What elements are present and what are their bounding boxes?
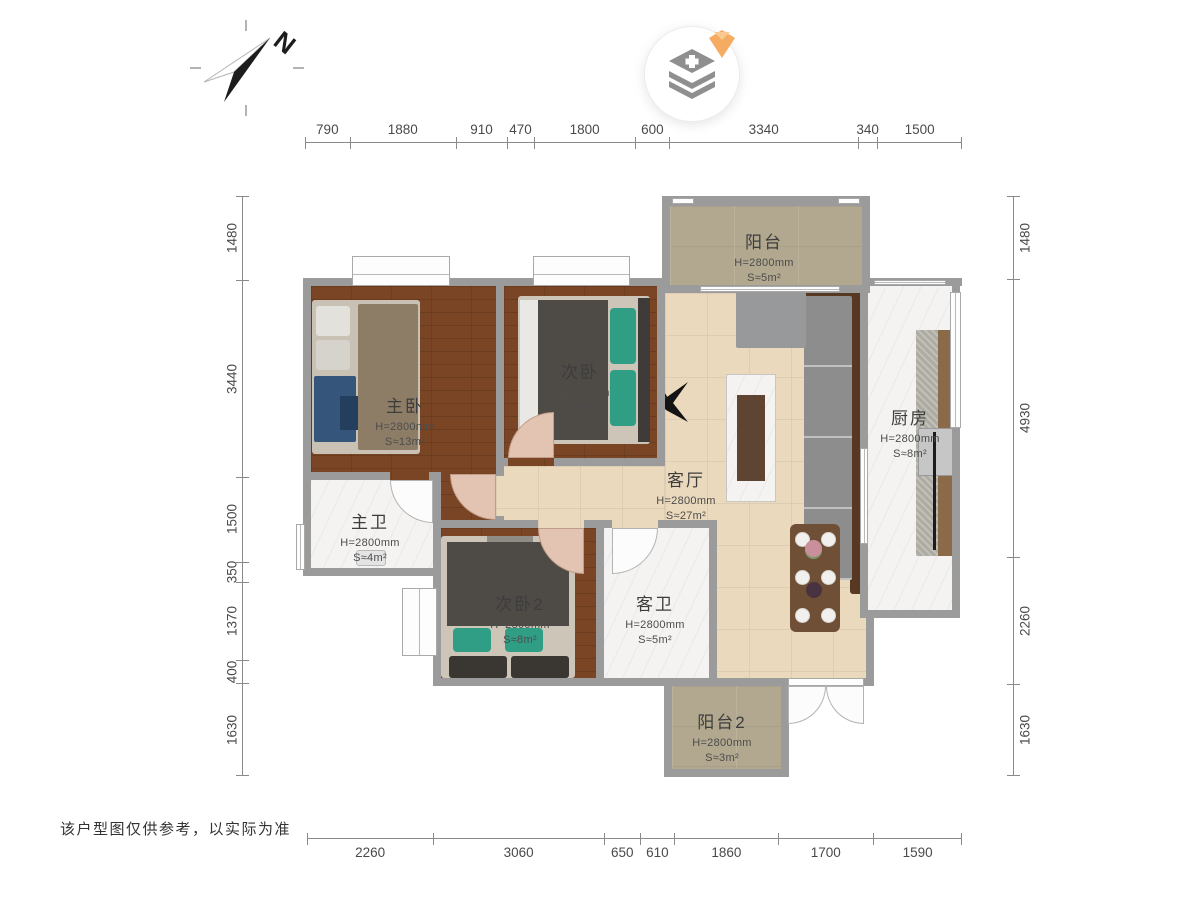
floor-plan-canvas: N 7901880910470180060033403401500 226030… <box>0 0 1200 900</box>
dimension-segment: 1590 <box>873 832 962 864</box>
dimension-line-top: 7901880910470180060033403401500 <box>305 120 962 150</box>
dimension-segment: 1800 <box>534 120 636 150</box>
room-label-bedroom-3: 次卧2 H=2800mm S≈8m² <box>490 590 550 649</box>
plate <box>821 570 836 585</box>
wall-segment <box>662 196 670 288</box>
dimension-value: 400 <box>225 660 240 683</box>
dimension-segment: 400 <box>222 660 252 683</box>
dimension-segment: 4930 <box>1004 279 1034 557</box>
dimension-value: 2260 <box>355 845 385 860</box>
dimension-line-bottom: 22603060650610186017001590 <box>307 832 962 864</box>
dimension-segment: 1880 <box>350 120 456 150</box>
plate <box>795 608 810 623</box>
dimension-value: 1630 <box>225 714 240 744</box>
room-label-bedroom-2: 次卧 H=2800mm S≈9m² <box>550 358 610 417</box>
pillow <box>316 340 350 370</box>
room-label-master-bedroom: 主卧 H=2800mm S≈13m² <box>375 392 435 451</box>
wall-segment <box>657 278 665 466</box>
dimension-value: 790 <box>316 122 339 137</box>
room-label-balcony-2: 阳台2 H=2800mm S≈3m² <box>692 708 752 767</box>
room-label-balcony: 阳台 H=2800mm S≈5m² <box>734 228 794 287</box>
premium-diamond-icon <box>706 28 738 60</box>
dimension-value: 910 <box>470 122 493 137</box>
dimension-segment: 1500 <box>222 477 252 563</box>
wall-segment <box>709 678 788 686</box>
wall-segment <box>860 610 960 618</box>
dimension-segment: 610 <box>640 832 674 864</box>
dimension-segment: 1630 <box>222 683 252 776</box>
wall-segment <box>862 196 870 288</box>
kitchen-side-window <box>950 292 961 428</box>
dimension-value: 610 <box>646 845 669 860</box>
pillow-teal <box>453 628 491 652</box>
flower-decor <box>805 540 822 557</box>
dimension-segment: 1860 <box>674 832 778 864</box>
dimension-value: 3440 <box>225 363 240 393</box>
pillow-dark <box>511 656 569 678</box>
dimension-segment: 1630 <box>1004 684 1034 776</box>
wall-segment <box>303 472 390 480</box>
dimension-value: 1370 <box>225 606 240 636</box>
entry-door-right <box>826 686 864 724</box>
headboard <box>638 298 650 442</box>
wall-segment <box>860 544 868 614</box>
dimension-segment: 2260 <box>1004 557 1034 684</box>
wall-segment <box>584 520 612 528</box>
compass-north-icon: N <box>188 18 306 118</box>
wall-segment <box>433 520 538 528</box>
dimension-segment: 3440 <box>222 280 252 476</box>
wall-segment <box>303 568 441 576</box>
dimension-segment: 3340 <box>669 120 858 150</box>
dimension-segment: 1480 <box>222 196 252 280</box>
dimension-value: 1590 <box>903 845 933 860</box>
room-label-guest-bath: 客卫 H=2800mm S≈5m² <box>625 590 685 649</box>
dimension-value: 4930 <box>1018 403 1033 433</box>
coffee-table-top <box>737 395 765 481</box>
wall-segment <box>664 769 789 777</box>
dimension-value: 1860 <box>711 845 741 860</box>
coffee-table <box>726 374 776 502</box>
dimension-value: 2260 <box>1018 606 1033 636</box>
bay-window-bedroom-2 <box>533 256 630 286</box>
dimension-segment: 1370 <box>222 582 252 660</box>
hallway-floor <box>496 466 665 528</box>
pillow-teal <box>610 370 636 426</box>
pillow-teal <box>610 308 636 364</box>
dimension-segment: 340 <box>858 120 877 150</box>
wall-segment <box>664 686 672 777</box>
wall-segment <box>866 618 874 686</box>
wall-segment <box>596 528 604 678</box>
wall-segment <box>496 286 504 466</box>
room-label-kitchen: 厨房 H=2800mm S≈8m² <box>880 404 940 463</box>
dimension-value: 650 <box>611 845 634 860</box>
pillow-dark <box>449 656 507 678</box>
dining-table <box>790 524 840 632</box>
dimension-value: 1480 <box>1018 223 1033 253</box>
plate <box>795 570 810 585</box>
dimension-value: 3060 <box>504 845 534 860</box>
room-label-living-room: 客厅 H=2800mm S≈27m² <box>656 466 716 525</box>
dimension-segment: 910 <box>456 120 507 150</box>
balcony-window <box>672 198 694 204</box>
wall-segment <box>554 458 665 466</box>
dimension-segment: 1700 <box>778 832 873 864</box>
dimension-line-right: 1480493022601630 <box>1004 196 1034 776</box>
dimension-value: 3340 <box>749 122 779 137</box>
bedroom-3-window-box <box>402 588 437 656</box>
dimension-segment: 1500 <box>877 120 962 150</box>
dimension-value: 600 <box>641 122 664 137</box>
dimension-value: 1880 <box>388 122 418 137</box>
dimension-value: 1500 <box>905 122 935 137</box>
plate <box>821 532 836 547</box>
dimension-segment: 470 <box>507 120 534 150</box>
pillow <box>316 306 350 336</box>
kitchen-door-opening <box>860 448 868 544</box>
dimension-segment: 2260 <box>307 832 433 864</box>
room-label-master-bath: 主卫 H=2800mm S≈4m² <box>340 508 400 567</box>
dimension-segment: 1480 <box>1004 196 1034 279</box>
dimension-segment: 790 <box>305 120 350 150</box>
dimension-value: 470 <box>509 122 532 137</box>
wall-segment <box>433 678 717 686</box>
dimension-value: 1700 <box>811 845 841 860</box>
dimension-value: 1480 <box>225 223 240 253</box>
bay-window-master <box>352 256 450 286</box>
entry-door-left <box>788 686 826 724</box>
sofa-chaise <box>736 292 806 348</box>
dimension-value: 1500 <box>225 504 240 534</box>
bowl <box>806 582 822 598</box>
disclaimer-text: 该户型图仅供参考，以实际为准 <box>60 818 291 839</box>
dimension-segment: 600 <box>635 120 669 150</box>
entry-door-frame <box>788 678 864 686</box>
dimension-value: 340 <box>856 122 879 137</box>
dimension-segment: 350 <box>222 562 252 582</box>
wall-segment <box>429 472 441 480</box>
wall-segment <box>496 466 504 476</box>
dimension-value: 1630 <box>1018 715 1033 745</box>
kitchen-top-window <box>874 280 946 285</box>
dimension-segment: 3060 <box>433 832 604 864</box>
dimension-line-left: 14803440150035013704001630 <box>222 196 252 776</box>
dimension-value: 350 <box>225 561 240 584</box>
plate <box>821 608 836 623</box>
wall-segment <box>496 458 508 466</box>
master-bath-window <box>296 524 305 570</box>
wall-segment <box>860 292 868 448</box>
balcony-sliding-door <box>700 286 840 292</box>
compass-north-label: N <box>268 25 301 60</box>
dimension-value: 1800 <box>570 122 600 137</box>
dimension-segment: 650 <box>604 832 640 864</box>
balcony-window <box>838 198 860 204</box>
wall-segment <box>709 520 717 686</box>
